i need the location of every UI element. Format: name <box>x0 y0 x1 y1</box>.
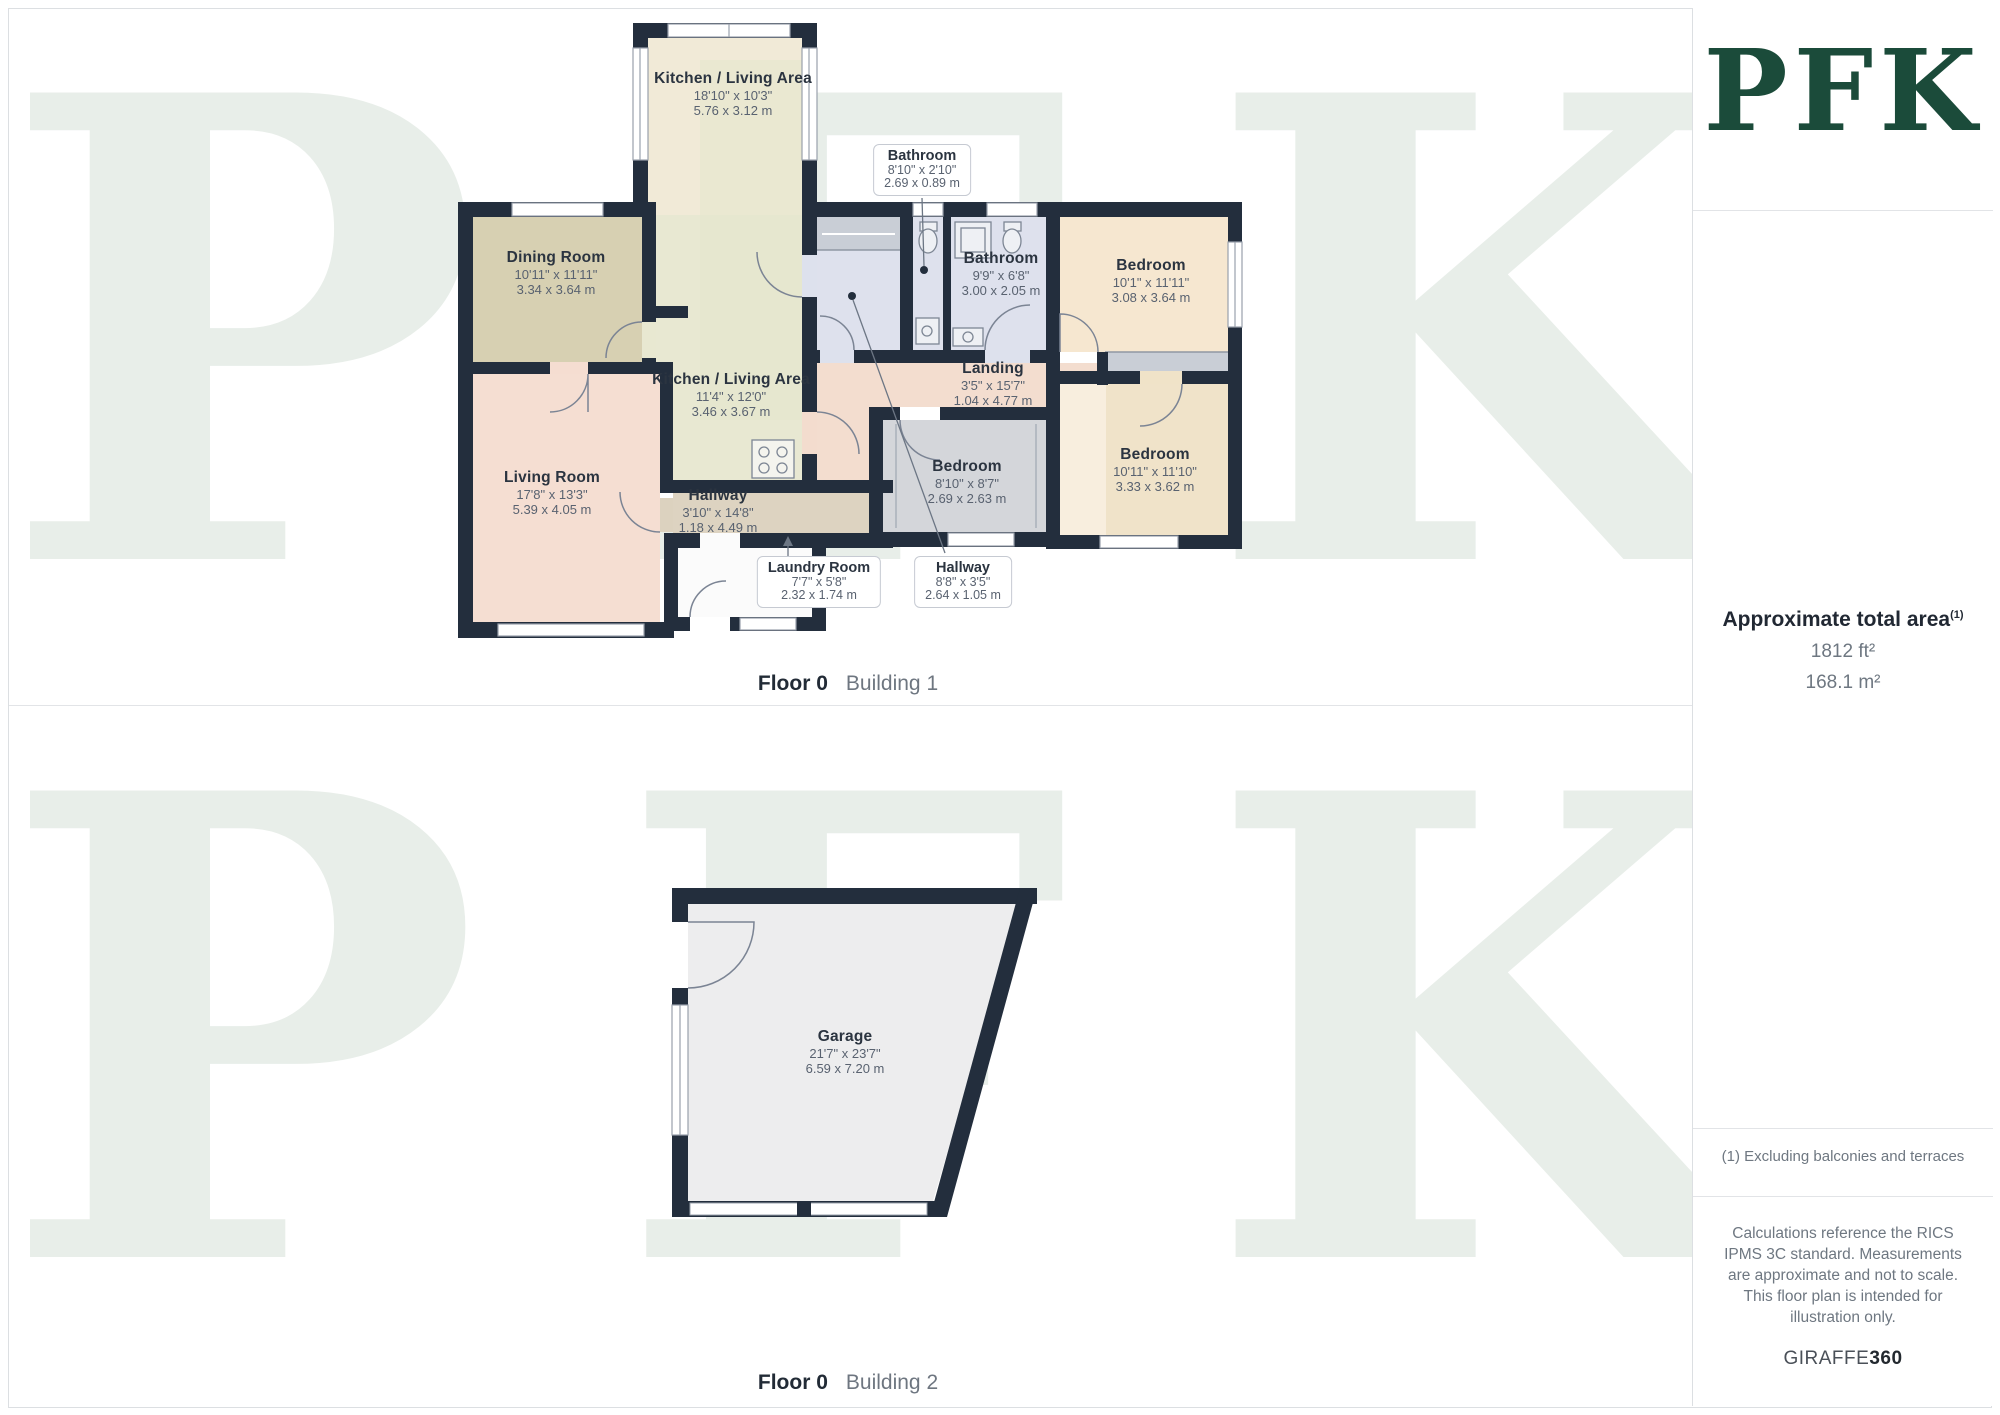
total-area-m: 168.1 m² <box>1693 672 1993 694</box>
label-bedroom-tr: Bedroom 10'1" x 11'11" 3.08 x 3.64 m <box>1112 257 1191 304</box>
giraffe360-brand: GIRAFFE360 <box>1693 1348 1993 1370</box>
total-area-ft: 1812 ft² <box>1693 641 1993 663</box>
pfk-logo: PFK <box>1693 36 1993 148</box>
rics-disclaimer: Calculations reference the RICS IPMS 3C … <box>1715 1223 1971 1328</box>
label-garage: Garage 21'7" x 23'7" 6.59 x 7.20 m <box>806 1028 885 1075</box>
label-bathroom: Bathroom 9'9" x 6'8" 3.00 x 2.05 m <box>962 250 1041 297</box>
total-area-title: Approximate total area(1) <box>1693 608 1993 632</box>
label-bedroom-br: Bedroom 10'11" x 11'10" 3.33 x 3.62 m <box>1113 446 1197 493</box>
label-living: Living Room 17'8" x 13'3" 5.39 x 4.05 m <box>504 469 600 516</box>
label-hallway: Hallway 3'10" x 14'8" 1.18 x 4.49 m <box>679 487 758 534</box>
caption-building-1: Floor 0Building 1 <box>758 672 938 696</box>
sidebar-divider <box>1693 210 1993 211</box>
label-landing: Landing 3'5" x 15'7" 1.04 x 4.77 m <box>954 360 1033 407</box>
callout-bathroom: Bathroom 8'10" x 2'10" 2.69 x 0.89 m <box>873 144 971 196</box>
label-dining: Dining Room 10'11" x 11'11" 3.34 x 3.64 … <box>507 249 606 296</box>
label-kitchen-top: Kitchen / Living Area 18'10" x 10'3" 5.7… <box>654 70 812 117</box>
garage-door-gap <box>672 922 688 988</box>
label-bedroom-mid: Bedroom 8'10" x 8'7" 2.69 x 2.63 m <box>928 458 1007 505</box>
info-sidebar: PFK Approximate total area(1) 1812 ft² 1… <box>1692 8 1993 1406</box>
sidebar-divider <box>1693 1128 1993 1129</box>
callout-hallway: Hallway 8'8" x 3'5" 2.64 x 1.05 m <box>914 556 1012 608</box>
sidebar-divider <box>1693 1196 1993 1197</box>
label-kitchen-mid: Kitchen / Living Area 11'4" x 12'0" 3.46… <box>652 371 810 418</box>
exclusions-footnote: (1) Excluding balconies and terraces <box>1708 1148 1978 1165</box>
caption-building-2: Floor 0Building 2 <box>758 1371 938 1395</box>
callout-laundry: Laundry Room 7'7" x 5'8" 2.32 x 1.74 m <box>757 556 881 608</box>
stove-icon <box>752 440 794 478</box>
total-area-block: Approximate total area(1) 1812 ft² 168.1… <box>1693 608 1993 694</box>
bedroom-br-band <box>1060 384 1106 535</box>
